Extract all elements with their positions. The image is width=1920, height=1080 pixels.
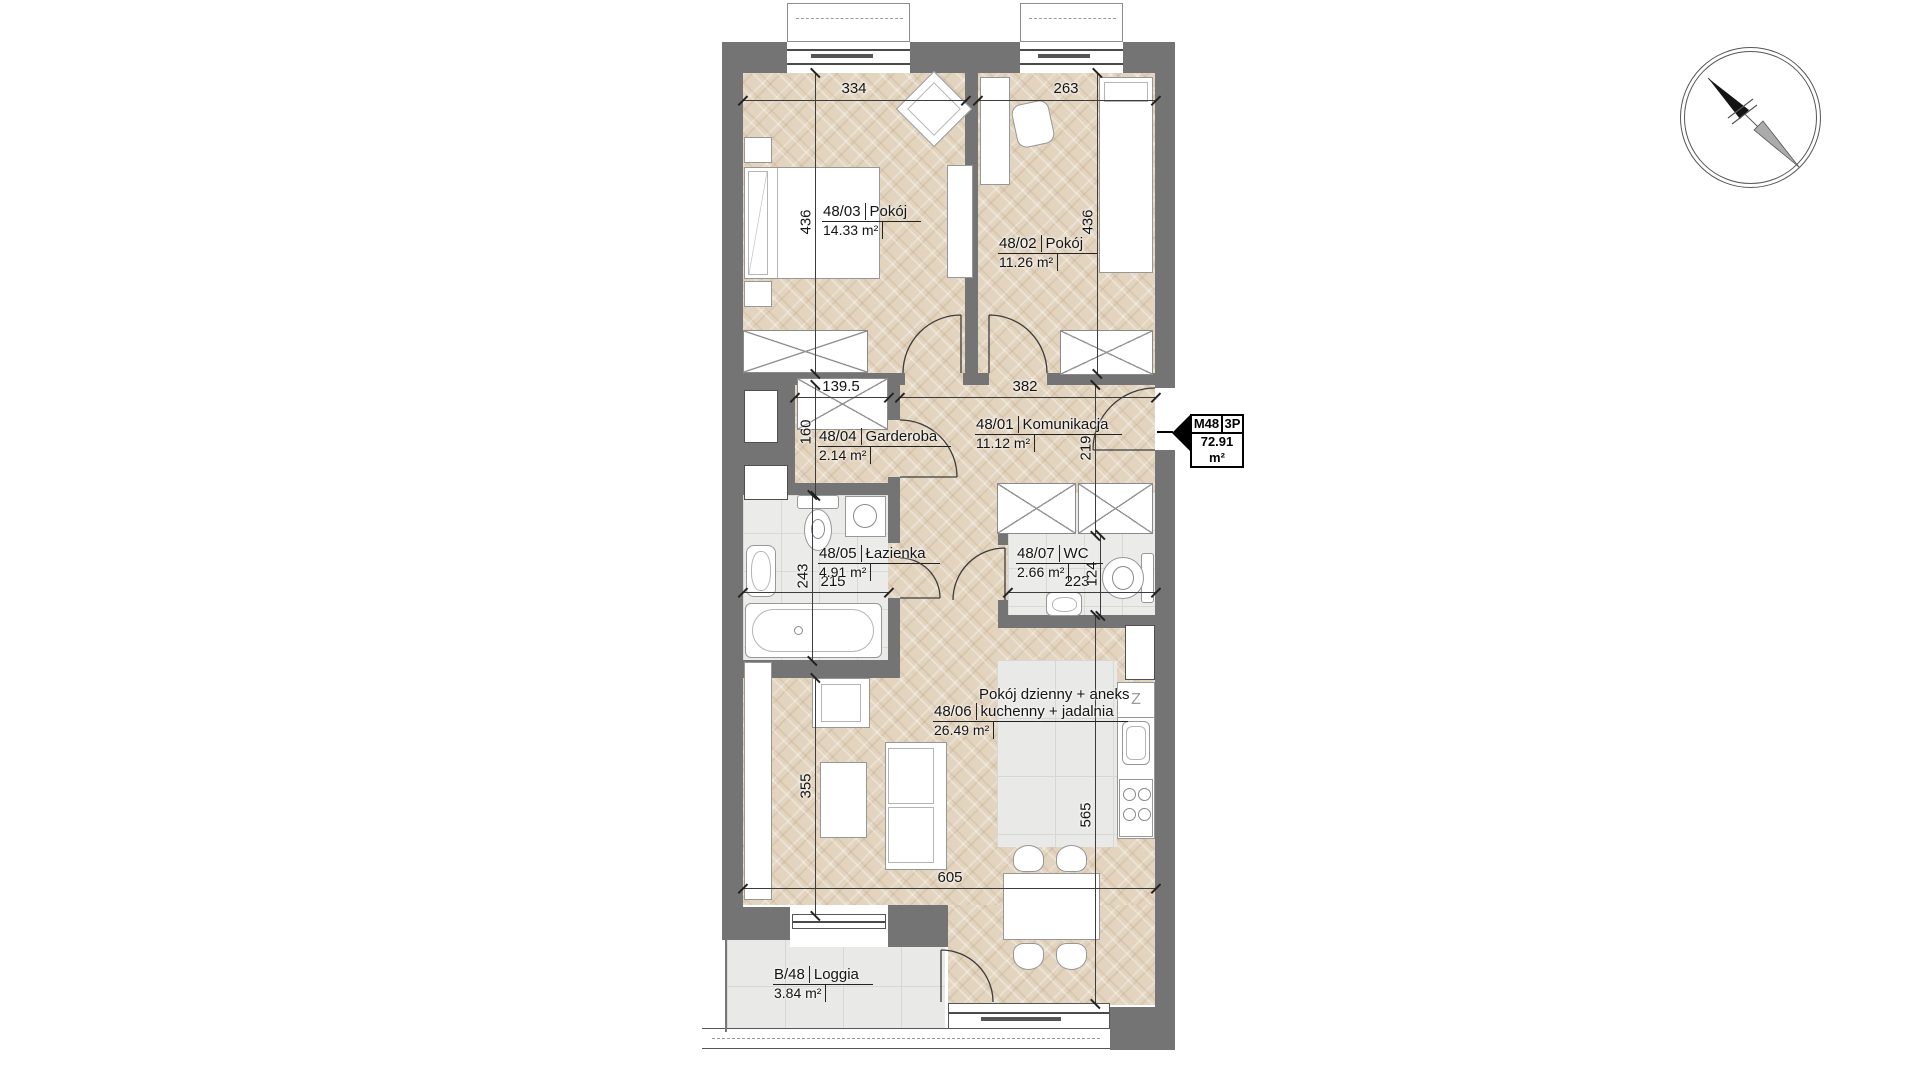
room-label-48-03: 48/03Pokój 14.33 m²	[822, 203, 921, 240]
room-area: 3.84 m²	[773, 985, 826, 1002]
dim-line	[812, 495, 813, 660]
door-swings-layer	[0, 0, 1920, 1080]
room-label-loggia: B/48Loggia 3.84 m²	[773, 966, 873, 1003]
unit-info-tag: M48 3P 72.91 m²	[1190, 414, 1244, 468]
dim-line	[1095, 615, 1096, 1003]
room-label-48-02: 48/02Pokój 11.26 m²	[998, 235, 1097, 272]
dim-line	[978, 100, 1155, 101]
room-name-line1: Pokój dzienny + aneks	[933, 686, 1130, 703]
unit-code: M48	[1192, 416, 1223, 432]
door-loggia	[941, 950, 993, 1002]
dim-line	[900, 397, 1155, 398]
room-label-48-06: Pokój dzienny + aneks 48/06kuchenny + ja…	[933, 686, 1130, 740]
room-area: 11.12 m²	[975, 435, 1035, 452]
room-name: Loggia	[809, 966, 859, 983]
room-name: Komunikacja	[1018, 416, 1109, 433]
room-label-48-05: 48/05Łazienka 4.91 m²	[818, 545, 940, 582]
dim-line	[743, 888, 1155, 889]
room-area: 2.14 m²	[818, 447, 871, 464]
room-name: Pokój	[1041, 235, 1084, 252]
unit-area: 72.91 m²	[1192, 434, 1242, 466]
room-label-48-07: 48/07WC 2.66 m²	[1016, 545, 1103, 582]
unit-layout: 3P	[1223, 416, 1242, 432]
room-name: kuchenny + jadalnia	[976, 703, 1114, 720]
dim-line	[795, 397, 888, 398]
dim-line	[815, 678, 816, 915]
room-id: 48/02	[999, 235, 1041, 252]
dim-line	[815, 385, 816, 495]
dim-line	[815, 73, 816, 373]
room-area: 14.33 m²	[822, 222, 883, 239]
room-label-48-01: 48/01Komunikacja 11.12 m²	[975, 416, 1122, 453]
room-name: Pokój	[865, 203, 908, 220]
dim-line	[1095, 385, 1096, 535]
room-id: 48/01	[976, 416, 1018, 433]
dim-line	[1008, 592, 1155, 593]
room-name: Garderoba	[861, 428, 938, 445]
room-id: B/48	[774, 966, 809, 983]
room-id: 48/06	[934, 703, 976, 720]
floor-plan-page: Z 334 263 436 4	[0, 0, 1920, 1080]
unit-tag-leader-line	[1157, 431, 1173, 433]
door-48-03	[903, 315, 961, 373]
door-48-02	[989, 315, 1047, 373]
room-name: WC	[1059, 545, 1089, 562]
compass-rose-icon	[1678, 45, 1823, 190]
room-area: 11.26 m²	[998, 254, 1058, 271]
room-area: 4.91 m²	[818, 564, 871, 581]
door-wc	[953, 548, 1005, 600]
room-id: 48/03	[823, 203, 865, 220]
room-name: Łazienka	[861, 545, 926, 562]
dim-line	[1097, 73, 1098, 373]
unit-tag-arrow-icon	[1172, 414, 1191, 452]
room-id: 48/07	[1017, 545, 1059, 562]
room-area: 26.49 m²	[933, 722, 994, 739]
room-area: 2.66 m²	[1016, 564, 1069, 581]
dim-line	[743, 100, 965, 101]
dim-line	[743, 592, 888, 593]
room-id: 48/04	[819, 428, 861, 445]
room-label-48-04: 48/04Garderoba 2.14 m²	[818, 428, 951, 465]
room-id: 48/05	[819, 545, 861, 562]
